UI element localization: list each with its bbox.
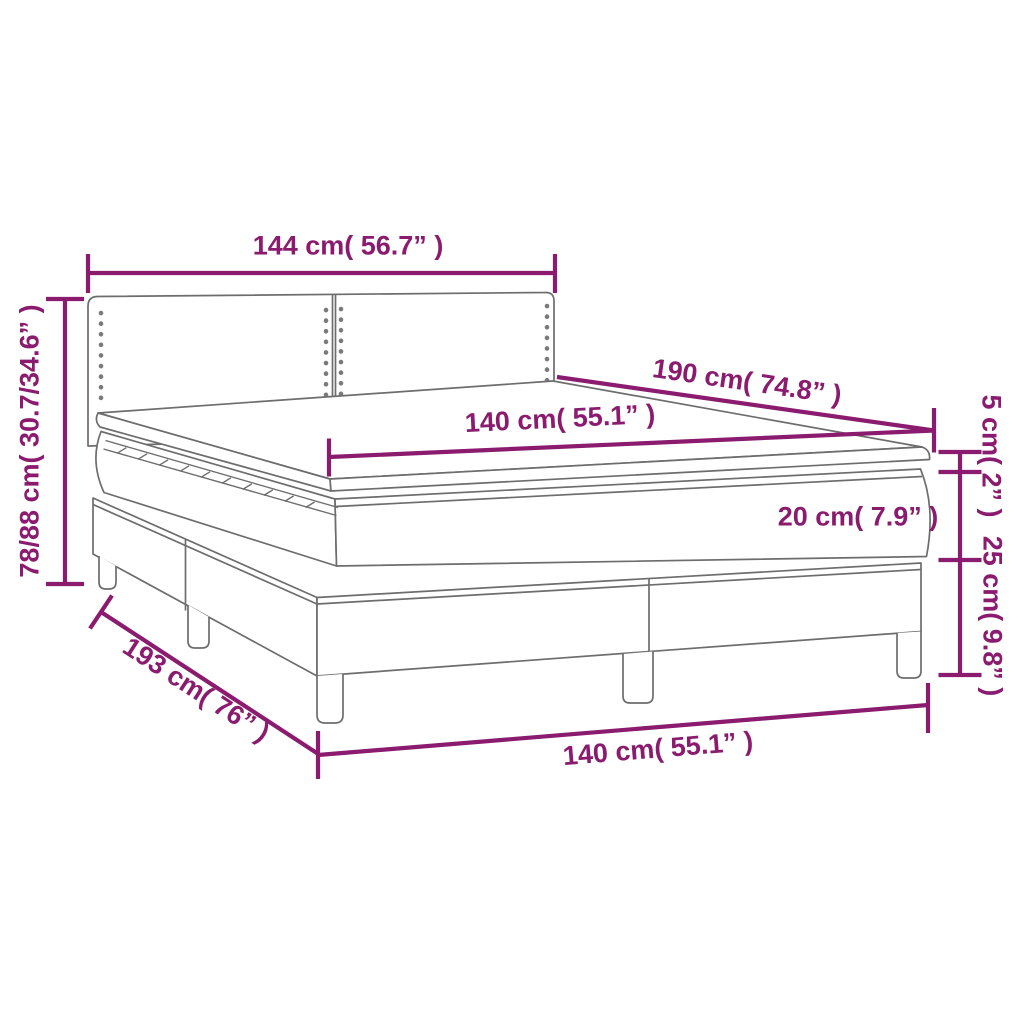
label-headboard-width: 144 cm( 56.7” )	[253, 231, 444, 262]
label-topper-thickness: 5 cm( 2” )	[976, 394, 1007, 517]
label-mattress-thickness: 20 cm( 7.9” )	[778, 502, 939, 533]
dim-line-headboard-height	[46, 299, 84, 584]
label-headboard-height: 78/88 cm( 30.7/34.6” )	[15, 304, 46, 577]
label-base-height: 25 cm( 9.8” )	[977, 536, 1008, 697]
bed-dimension-diagram: 144 cm( 56.7” ) 78/88 cm( 30.7/34.6” ) 1…	[0, 0, 1024, 1024]
